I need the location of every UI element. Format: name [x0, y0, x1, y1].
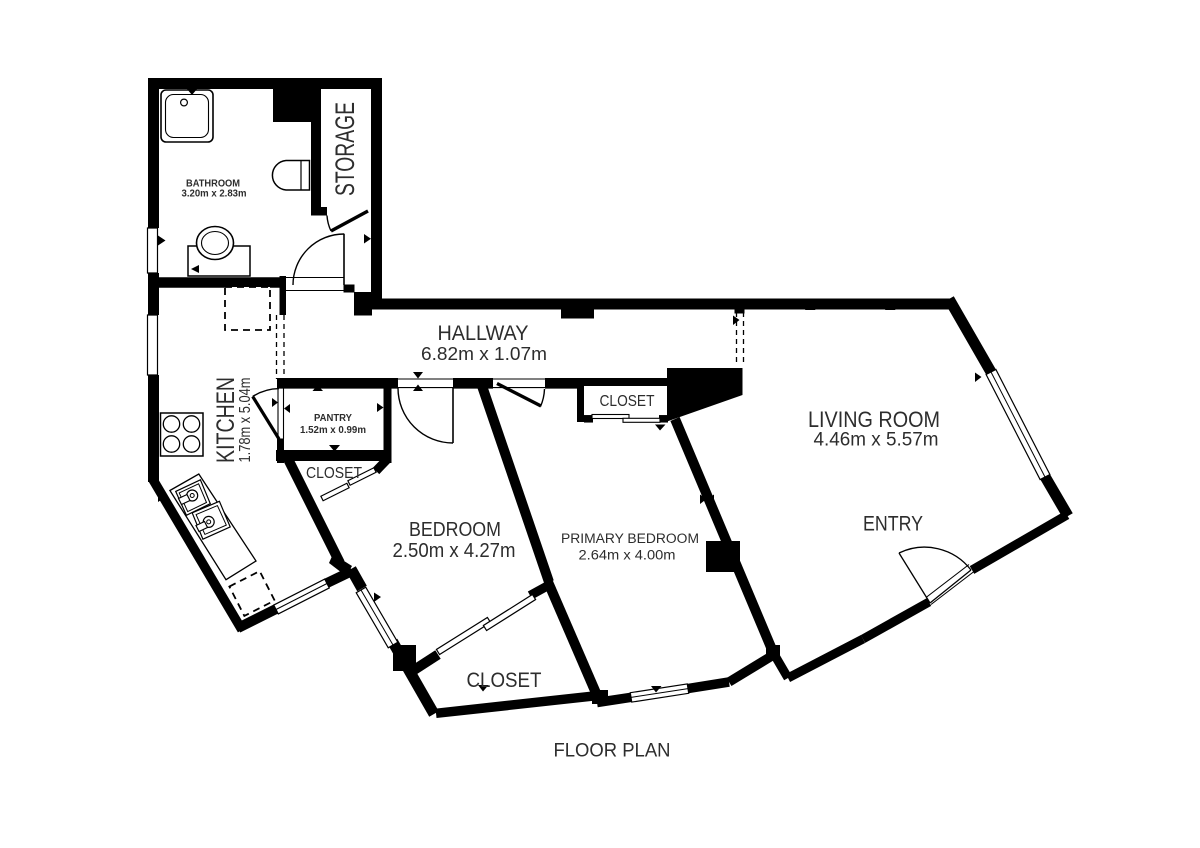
svg-text:1.78m x 5.04m: 1.78m x 5.04m — [237, 378, 254, 463]
svg-text:KITCHEN: KITCHEN — [212, 377, 240, 463]
svg-text:2.64m x 4.00m: 2.64m x 4.00m — [579, 548, 676, 563]
svg-text:PRIMARY BEDROOM: PRIMARY BEDROOM — [561, 531, 699, 547]
svg-text:1.52m x 0.99m: 1.52m x 0.99m — [300, 425, 366, 436]
svg-text:PANTRY: PANTRY — [314, 413, 352, 424]
svg-text:BEDROOM: BEDROOM — [409, 518, 501, 541]
svg-text:3.20m x 2.83m: 3.20m x 2.83m — [182, 189, 247, 200]
svg-text:CLOSET: CLOSET — [600, 393, 655, 410]
svg-text:4.46m x 5.57m: 4.46m x 5.57m — [814, 429, 939, 451]
svg-text:ENTRY: ENTRY — [863, 513, 923, 536]
svg-text:CLOSET: CLOSET — [467, 669, 542, 692]
svg-text:FLOOR PLAN: FLOOR PLAN — [554, 740, 671, 762]
svg-text:6.82m x 1.07m: 6.82m x 1.07m — [421, 343, 547, 364]
svg-text:CLOSET: CLOSET — [306, 465, 362, 482]
svg-text:2.50m x 4.27m: 2.50m x 4.27m — [393, 540, 516, 562]
svg-text:HALLWAY: HALLWAY — [438, 322, 529, 345]
svg-text:STORAGE: STORAGE — [330, 102, 360, 196]
